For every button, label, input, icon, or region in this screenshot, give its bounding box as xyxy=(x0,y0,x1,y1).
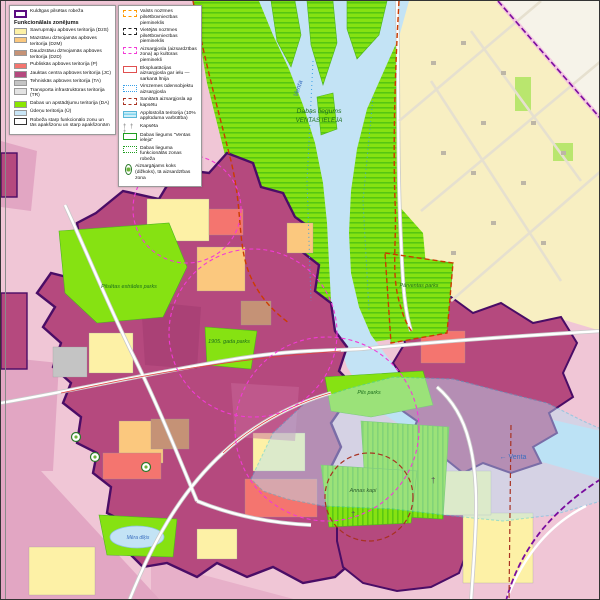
legend-panel-zoning: Kuldīgas pilsētas robeža Funkcionālais z… xyxy=(9,5,116,135)
venta-label-right: ← Venta xyxy=(500,454,527,461)
legend-item-nature-reserve: Dabas liegums "Ventas ieleja" xyxy=(123,133,197,145)
sanitary-zone-swatch xyxy=(123,98,137,105)
cemetery-cross-icon: † xyxy=(351,510,355,519)
legend-title: Funkcionālais zonējums xyxy=(14,20,111,26)
legend-label: Kapsēta xyxy=(140,124,158,130)
zoning-map-sheet: † † Dabas liegums VENTAS IELEJA Venta ← … xyxy=(0,0,600,600)
legend-label: Dabas un apstādījumu teritorija (DA) xyxy=(30,101,109,107)
legend-item-ta: Tehniskās apbūves teritorija (TA) xyxy=(14,79,111,86)
legend-item-monument-zone: Aizsargjosla (aizsardzības zona) ap kult… xyxy=(123,47,197,64)
reserve-zone-boundary-swatch xyxy=(123,146,137,153)
reserve-label: Dabas liegums xyxy=(297,108,343,115)
legend-item-dzm: Mazstāvu dzīvojamās apbūves teritorija (… xyxy=(14,36,111,48)
flood-area-swatch xyxy=(123,111,137,118)
legend-label: Aizsargjosla (aizsardzības zona) ap kult… xyxy=(140,47,197,64)
legend-label: Aizsargājams koks (dižkoks), tā aizsardz… xyxy=(135,164,197,181)
monument-zone-swatch xyxy=(123,47,137,54)
parventas-parks-label: Pārventas parks xyxy=(400,283,439,289)
p-swatch xyxy=(14,63,27,70)
legend-item-city-boundary: Kuldīgas pilsētas robeža xyxy=(14,9,111,18)
legend-label: Publiskās apbūves teritorija (P) xyxy=(30,62,97,68)
mera-dikis-label: Mēra dīķis xyxy=(127,535,150,541)
dzs-swatch xyxy=(14,28,27,35)
legend-label: Valsts nozīmes pilsētbūvniecības piemine… xyxy=(140,9,197,26)
legend-item-da: Dabas un apstādījumu teritorija (DA) xyxy=(14,101,111,108)
legend-label: Daudzstāvu dzīvojamās apbūves teritorija… xyxy=(30,49,111,61)
legend-item-water-protection: Virszemes ūdensobjektu aizsargjosla xyxy=(123,84,197,96)
annas-kapi-label: Annas kapi xyxy=(349,488,377,494)
legend-label: Transporta infrastruktūras teritorija (T… xyxy=(30,88,111,100)
state-monument-swatch xyxy=(123,10,137,17)
legend-panel-overlays: Valsts nozīmes pilsētbūvniecības piemine… xyxy=(118,5,202,187)
legend-item-sanitary-zone: Sanitārā aizsargjosla ap kapsētu xyxy=(123,97,197,109)
legend-item-protected-tree: Aizsargājams koks (dižkoks), tā aizsardz… xyxy=(123,164,197,181)
legend-item-red-line: Ekspluatācijas aizsargjosla gar ielu — s… xyxy=(123,66,197,83)
ta-swatch xyxy=(14,80,27,87)
u-swatch xyxy=(14,110,27,117)
local-monument-swatch xyxy=(123,28,137,35)
legend-label: Dabas lieguma funkcionālās zonas robeža xyxy=(140,146,197,163)
legend-label: Jauktas centra apbūves teritorija (JC) xyxy=(30,71,111,77)
legend-item-u: Ūdeņu teritorija (Ū) xyxy=(14,109,111,116)
legend-item-dzs: Savrupmāju apbūves teritorija (DzS) xyxy=(14,28,111,35)
water-protection-swatch xyxy=(123,85,137,92)
pils-parks-label: Pils parks xyxy=(357,390,381,396)
tr-swatch xyxy=(14,88,27,95)
legend-label: Tehniskās apbūves teritorija (TA) xyxy=(30,79,101,85)
reserve-label: VENTAS IELEJA xyxy=(296,117,343,124)
cemetery-icon: † † † xyxy=(123,124,137,131)
legend-item-state-monument: Valsts nozīmes pilsētbūvniecības piemine… xyxy=(123,9,197,26)
da-swatch xyxy=(14,101,27,108)
legend-label: Vietējās nozīmes pilsētbūvniecības piemi… xyxy=(140,28,197,45)
legend-label: Dabas liegums "Ventas ieleja" xyxy=(140,133,197,145)
legend-item-local-monument: Vietējās nozīmes pilsētbūvniecības piemi… xyxy=(123,28,197,45)
legend-item-subzone-boundary: Robeža starp funkcionālo zonu un tās apa… xyxy=(14,118,111,130)
legend-label: Savrupmāju apbūves teritorija (DzS) xyxy=(30,28,109,34)
subzone-boundary-swatch xyxy=(14,118,27,125)
legend-item-cemetery: † † †Kapsēta xyxy=(123,124,197,132)
legend-label: Ūdeņu teritorija (Ū) xyxy=(30,109,71,115)
jc-swatch xyxy=(14,71,27,78)
legend-label: Ekspluatācijas aizsargjosla gar ielu — s… xyxy=(140,66,197,83)
legend-item-reserve-zone-boundary: Dabas lieguma funkcionālās zonas robeža xyxy=(123,146,197,163)
legend-item-p: Publiskās apbūves teritorija (P) xyxy=(14,62,111,69)
dzm-swatch xyxy=(14,37,27,44)
legend-label: Sanitārā aizsargjosla ap kapsētu xyxy=(140,97,197,109)
legend-label: Applūstošā teritorija (10% applūduma var… xyxy=(140,111,197,123)
legend-label: Robeža starp funkcionālo zonu un tās apa… xyxy=(30,118,111,130)
estrades-parks-label: Pilsētas estrādes parks xyxy=(101,284,157,290)
legend-item-tr: Transporta infrastruktūras teritorija (T… xyxy=(14,88,111,100)
legend-item-flood-area: Applūstošā teritorija (10% applūduma var… xyxy=(123,111,197,123)
legend-item-dzd: Daudzstāvu dzīvojamās apbūves teritorija… xyxy=(14,49,111,61)
legend-item-jc: Jauktas centra apbūves teritorija (JC) xyxy=(14,71,111,78)
red-line-swatch xyxy=(123,66,137,73)
cemetery-cross-icon: † xyxy=(431,476,435,485)
nature-reserve-swatch xyxy=(123,133,137,140)
1905-parks-label: 1905. gada parks xyxy=(208,339,250,345)
legend-label: Virszemes ūdensobjektu aizsargjosla xyxy=(140,84,197,96)
legend-label: Mazstāvu dzīvojamās apbūves teritorija (… xyxy=(30,36,111,48)
dzd-swatch xyxy=(14,50,27,57)
legend-label: Kuldīgas pilsētas robeža xyxy=(30,9,83,15)
protected-tree-icon xyxy=(125,164,132,175)
city-boundary-swatch xyxy=(14,10,27,18)
